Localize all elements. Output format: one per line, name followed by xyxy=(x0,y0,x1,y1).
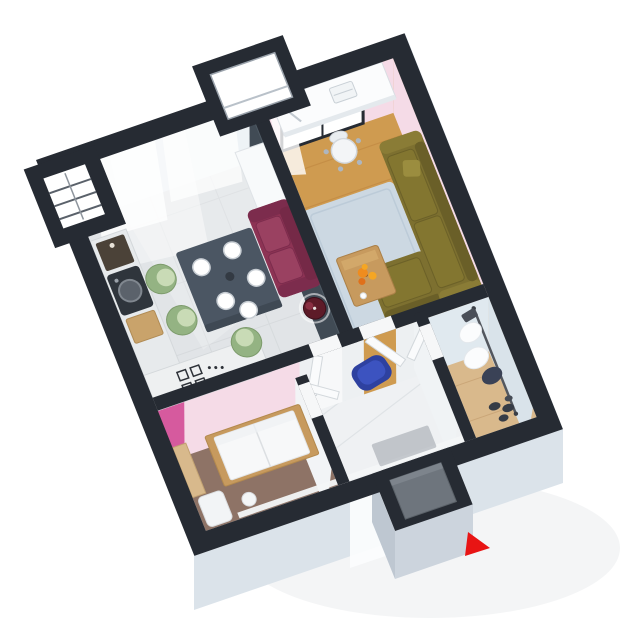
floor-plan-render xyxy=(0,0,640,640)
throw-pillow xyxy=(402,160,420,177)
floor-plan-stage xyxy=(0,0,640,640)
